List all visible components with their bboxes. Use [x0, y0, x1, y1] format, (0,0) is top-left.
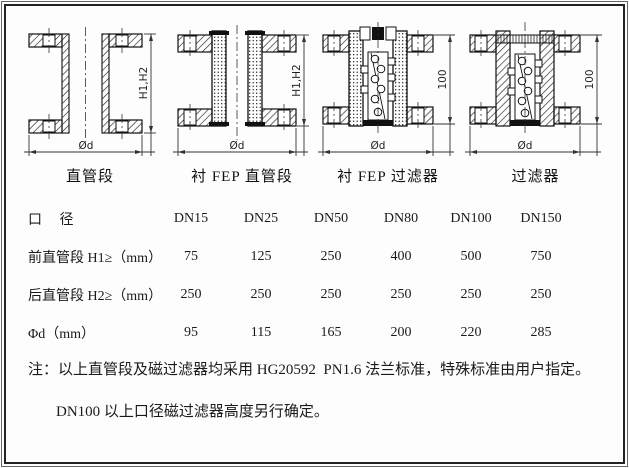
drawing-filter: 100 Ød 过滤器: [458, 22, 613, 186]
height-dim-label: 100: [584, 69, 596, 89]
dimension-lines: [24, 34, 156, 156]
diameter-dim-label: Ød: [518, 140, 533, 152]
row-label: 后直管段 H2≥（mm）: [28, 285, 156, 305]
header-label-diameter: 口 径: [28, 209, 156, 229]
fep-straight-pipe-figure: H1,H2 Ød: [168, 22, 316, 164]
drawing-caption: 衬 FEP 过滤器: [314, 165, 462, 186]
column-header: DN25: [226, 211, 296, 227]
column-header: DN15: [156, 211, 226, 227]
column-header: DN50: [296, 211, 366, 227]
drawing-fep-filter: 100 Ød 衬 FEP 过滤器: [314, 22, 462, 186]
table-value: 250: [436, 287, 506, 303]
row-label: 前直管段 H1≥（mm）: [28, 247, 156, 267]
diameter-dim-label: Ød: [371, 140, 386, 152]
table-value: 250: [296, 287, 366, 303]
fep-filter-figure: 100 Ød: [314, 22, 462, 164]
table-value: 250: [156, 287, 226, 303]
drawing-sheet: H1,H2 Ød 直管段: [0, 0, 629, 468]
height-dim-label: H1,H2: [291, 64, 303, 97]
table-row-h1: 前直管段 H1≥（mm） 75 125 250 400 500 750: [28, 238, 613, 276]
height-dim-label: 100: [437, 69, 449, 89]
diameter-dim-label: Ød: [79, 140, 94, 152]
filter-figure: 100 Ød: [458, 22, 613, 164]
table-value: 75: [156, 249, 226, 265]
note-flange-standard: 注：以上直管段及磁过滤器均采用 HG20592 PN1.6 法兰标准，特殊标准由…: [28, 358, 590, 379]
table-value: 250: [226, 287, 296, 303]
table-value: 200: [366, 325, 436, 341]
height-dim-label: H1,H2: [138, 67, 150, 100]
drawing-caption: 直管段: [16, 165, 164, 186]
drawing-caption: 过滤器: [458, 165, 613, 186]
table-row-phid: Φd（mm） 95 115 165 200 220 285: [28, 314, 613, 352]
drawing-straight-pipe: H1,H2 Ød 直管段: [16, 22, 164, 186]
table-value: 285: [506, 325, 576, 341]
table-value: 165: [296, 325, 366, 341]
dimension-lines: [173, 35, 309, 156]
table-value: 115: [226, 325, 296, 341]
table-value: 220: [436, 325, 506, 341]
row-label: Φd（mm）: [28, 323, 156, 343]
diameter-dim-label: Ød: [230, 140, 245, 152]
table-header-row: 口 径 DN15 DN25 DN50 DN80 DN100 DN150: [28, 200, 613, 238]
table-value: 400: [366, 249, 436, 265]
table-value: 125: [226, 249, 296, 265]
table-row-h2: 后直管段 H2≥（mm） 250 250 250 250 250 250: [28, 276, 613, 314]
column-header: DN80: [366, 211, 436, 227]
table-value: 500: [436, 249, 506, 265]
dimension-table: 口 径 DN15 DN25 DN50 DN80 DN100 DN150 前直管段…: [28, 200, 613, 352]
straight-pipe-figure: H1,H2 Ød: [16, 22, 164, 164]
table-value: 750: [506, 249, 576, 265]
column-header: DN100: [436, 211, 506, 227]
table-value: 250: [296, 249, 366, 265]
note-dn100-height: DN100 以上口径磁过滤器高度另行确定。: [56, 400, 329, 421]
table-value: 95: [156, 325, 226, 341]
column-header: DN150: [506, 211, 576, 227]
drawing-fep-straight-pipe: H1,H2 Ød 衬 FEP 直管段: [168, 22, 316, 186]
table-value: 250: [366, 287, 436, 303]
table-value: 250: [506, 287, 576, 303]
drawing-caption: 衬 FEP 直管段: [168, 165, 316, 186]
